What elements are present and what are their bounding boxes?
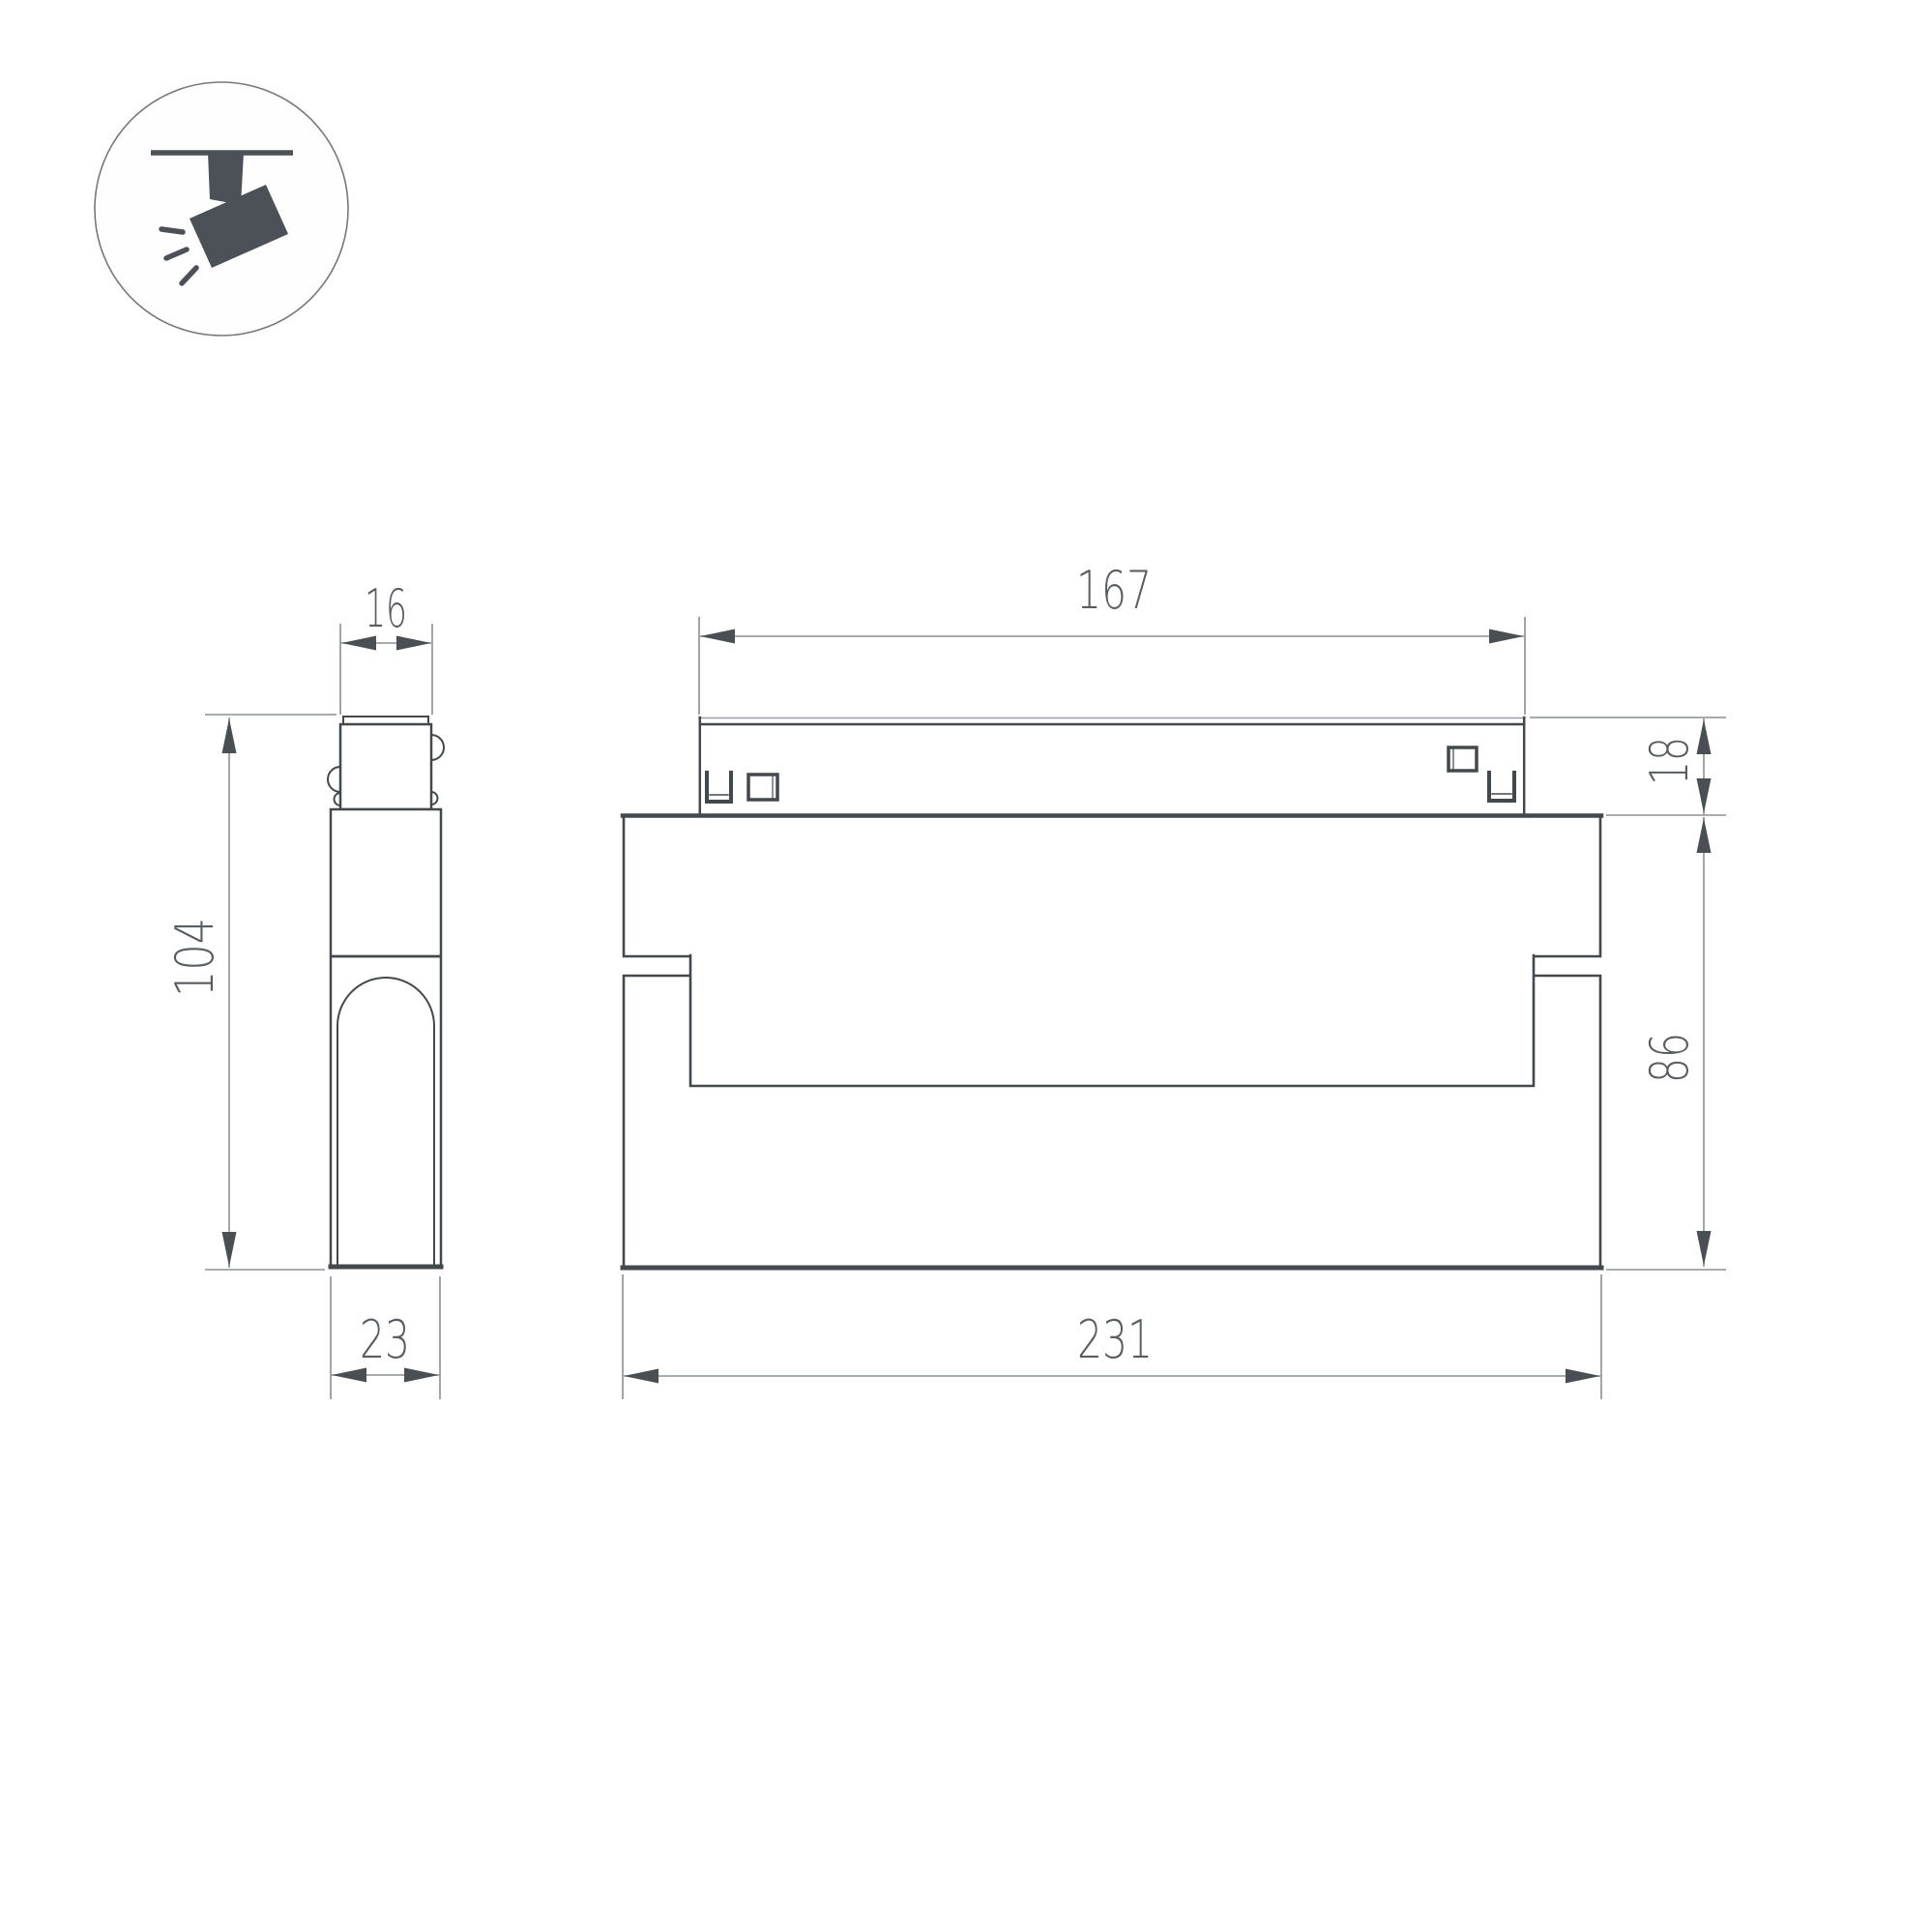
dim-167-extension-lines [699,617,1525,715]
dim-front-track-length: 167 [699,560,1525,715]
dim-167-arrow-right [1489,629,1524,644]
front-view [623,717,1601,1268]
dim-side-depth: 23 [331,1276,440,1399]
front-clip-rect-right [1449,747,1477,771]
dim-86-label: 86 [1639,1033,1700,1083]
dim-front-body-height: 86 [1606,817,1726,1270]
technical-drawing-page: 16 104 23 167 [0,0,1932,1932]
dim-16-label: 16 [365,578,407,639]
dim-104-arrow-bottom [222,1232,237,1267]
luminaire-dimension-drawing: 16 104 23 167 [0,0,1932,1932]
dim-167-arrow-left [700,629,735,644]
dim-104-arrow-top [222,718,237,753]
dim-18-label: 18 [1639,737,1700,785]
dim-167-label: 167 [1076,560,1152,621]
front-view-dimensions: 167 18 86 231 [623,560,1726,1399]
dim-23-label: 23 [360,1309,410,1370]
dim-side-track-width: 16 [340,578,432,715]
dim-front-track-height: 18 [1530,717,1726,815]
side-track-adapter [340,724,431,809]
dim-231-arrow-right [1566,1369,1600,1384]
dim-86-arrow-bottom [1697,1231,1712,1266]
front-clip-u-left [707,773,731,802]
side-view [328,717,444,1268]
mount-type-icon [95,82,348,336]
dim-231-label: 231 [1077,1309,1153,1370]
dim-front-total-length: 231 [623,1274,1601,1399]
dim-104-label: 104 [164,918,225,997]
side-body [331,809,441,1268]
dim-86-arrow-top [1697,818,1712,853]
dim-side-height: 104 [164,715,337,1270]
dim-231-arrow-left [624,1369,659,1384]
front-body-outline [624,817,1600,1268]
front-clip-u-right [1489,773,1514,801]
